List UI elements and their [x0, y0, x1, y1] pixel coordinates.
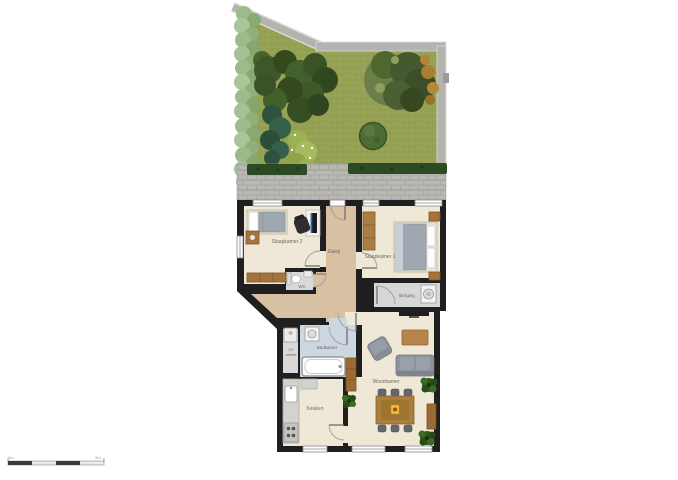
scale-end-label: 5m — [95, 455, 101, 460]
bookshelf-icon — [427, 404, 436, 429]
plant-icon — [342, 395, 356, 408]
label-keuken: Keuken — [307, 406, 324, 412]
floorplan-drawing: Slaapkamer 2 Gang Slaapkamer 1 WC Bergin… — [0, 0, 678, 480]
room-gang-floor — [326, 206, 356, 322]
nightstand-icon — [429, 272, 440, 280]
scale-bar: 0m 5m — [8, 455, 104, 465]
cabinet-icon — [247, 273, 286, 282]
bathroom-washer-icon — [305, 327, 319, 341]
topiary-bush — [360, 123, 387, 150]
floorplan-canvas: Slaapkamer 2 Gang Slaapkamer 1 WC Bergin… — [0, 0, 678, 480]
label-slaapkamer2: Slaapkamer 2 — [272, 239, 303, 245]
wc-sink-icon — [304, 271, 312, 277]
terrace — [237, 163, 447, 200]
plant-icon — [421, 378, 438, 393]
label-woonkamer: Woonkamer — [373, 379, 400, 385]
nightstand-icon — [429, 212, 440, 221]
dining-table-icon — [376, 389, 414, 432]
sofa-icon — [396, 355, 434, 376]
tall-cabinet-icon — [346, 358, 356, 391]
side-table-icon — [402, 330, 428, 345]
label-cv-line2: ruimte — [285, 352, 297, 357]
room-gang-niche-floor — [316, 272, 326, 294]
plant-icon — [419, 431, 436, 446]
nightstand-icon — [246, 231, 259, 244]
washer-icon — [421, 285, 436, 303]
house: Slaapkamer 2 Gang Slaapkamer 1 WC Bergin… — [237, 200, 446, 452]
scale-start-label: 0m — [8, 455, 14, 460]
garden — [233, 6, 449, 189]
single-bed-icon — [247, 210, 287, 234]
stove-icon — [284, 423, 298, 442]
label-badkamer: Badkamer — [317, 345, 338, 350]
front-door-opening — [330, 200, 345, 206]
boiler-icon — [284, 328, 297, 342]
label-berging: Berging — [399, 293, 415, 298]
label-slaapkamer1: Slaapkamer 1 — [365, 254, 396, 260]
bathtub-icon — [302, 357, 345, 376]
garden-gate-latch — [443, 73, 449, 83]
label-wc: WC — [298, 284, 306, 289]
label-gang: Gang — [328, 249, 340, 255]
wardrobe-icon — [363, 212, 375, 250]
double-bed-icon — [394, 222, 437, 272]
